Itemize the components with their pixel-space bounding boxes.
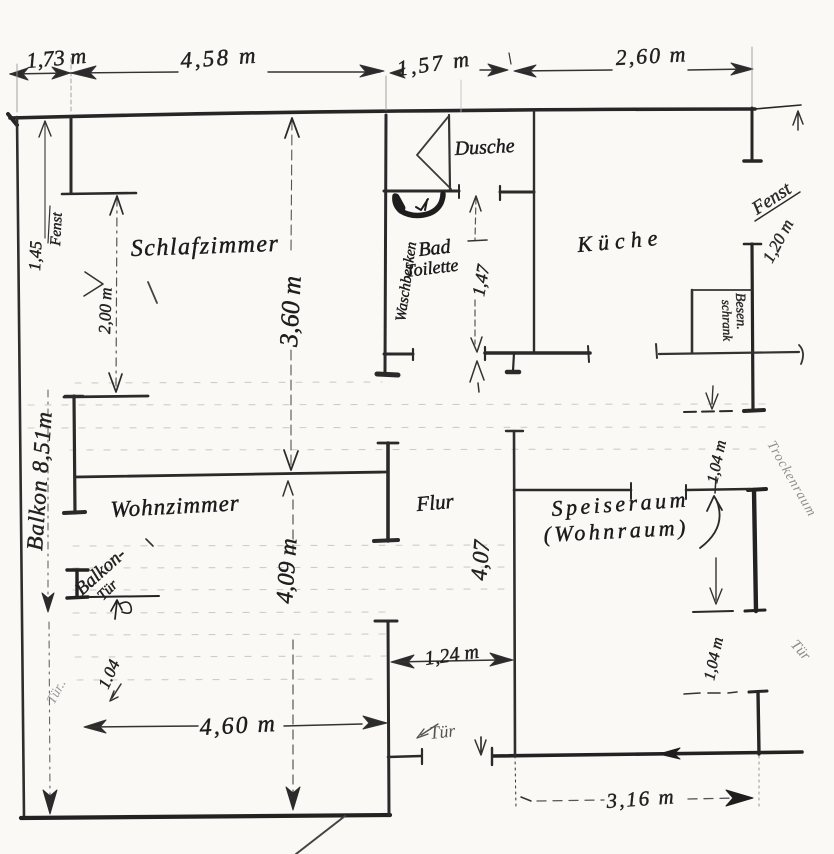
svg-text:Fenst: Fenst <box>48 211 66 247</box>
svg-text:4,07: 4,07 <box>466 538 495 582</box>
svg-text:Schlafzimmer: Schlafzimmer <box>130 231 279 262</box>
svg-text:2,00 m: 2,00 m <box>95 287 116 334</box>
svg-text:1,73 m: 1,73 m <box>25 43 87 73</box>
svg-text:4,60 m: 4,60 m <box>199 711 278 741</box>
svg-text:1,45: 1,45 <box>25 241 46 272</box>
svg-text:2,60 m: 2,60 m <box>615 41 688 70</box>
svg-text:1,20 m: 1,20 m <box>759 216 798 266</box>
svg-text:Wohnzimmer: Wohnzimmer <box>110 490 240 522</box>
svg-text:Tür: Tür <box>428 720 457 743</box>
svg-text:3,60 m: 3,60 m <box>274 275 307 348</box>
svg-text:Tür..: Tür.. <box>44 677 69 707</box>
svg-text:Trockenraum: Trockenraum <box>764 439 820 520</box>
svg-text:4,58 m: 4,58 m <box>180 43 259 73</box>
svg-text:schrank: schrank <box>719 300 735 342</box>
svg-text:Tür: Tür <box>787 637 814 664</box>
svg-text:1,47: 1,47 <box>468 262 493 297</box>
svg-text:1,04 m: 1,04 m <box>704 439 730 485</box>
svg-text:Dusche: Dusche <box>453 135 515 160</box>
svg-text:1,57 m: 1,57 m <box>395 46 473 81</box>
svg-text:Küche: Küche <box>575 225 664 258</box>
svg-text:1,04 m: 1,04 m <box>701 636 727 682</box>
svg-text:4,09 m: 4,09 m <box>272 537 302 604</box>
svg-text:Flur: Flur <box>414 489 455 516</box>
svg-text:Waschbecken: Waschbecken <box>393 241 420 323</box>
svg-text:Balkon 8,51m: Balkon 8,51m <box>22 410 57 551</box>
svg-text:3,16 m: 3,16 m <box>605 784 677 813</box>
svg-text:1,24 m: 1,24 m <box>423 641 480 670</box>
